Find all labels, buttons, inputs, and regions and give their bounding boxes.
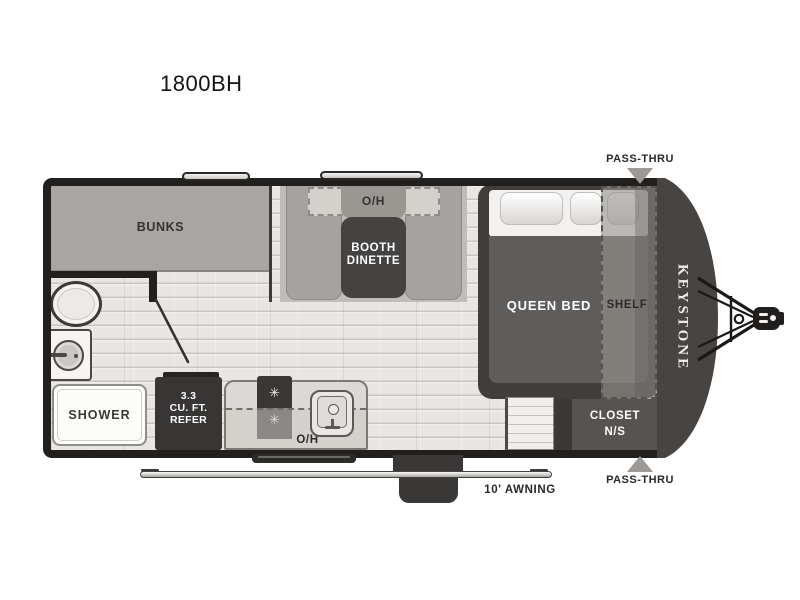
pass-thru-arrow-up-icon	[627, 456, 653, 472]
pass-thru-arrow-down-icon	[627, 168, 653, 184]
entry-step-lower	[399, 478, 458, 503]
awning-label: 10' AWNING	[465, 484, 575, 497]
model-title: 1800BH	[160, 72, 243, 96]
pass-thru-label-top: PASS-THRU	[580, 153, 700, 165]
brand-logo-vertical: KEYSTONE	[664, 244, 700, 392]
trailer-walls	[43, 178, 657, 458]
entry-grab-handle	[252, 454, 356, 463]
roof-vent-rail	[182, 172, 250, 181]
awning-roller-bar	[140, 471, 552, 478]
roof-vent-rail	[320, 171, 423, 180]
pass-thru-label-bottom: PASS-THRU	[580, 474, 700, 486]
floorplan-canvas: 1800BH BUNKS O/H BOOTH DINETTE QUEEN BED…	[0, 0, 800, 600]
tongue-jack-icon	[735, 315, 743, 323]
trailer-nose-and-hitch	[635, 160, 800, 480]
